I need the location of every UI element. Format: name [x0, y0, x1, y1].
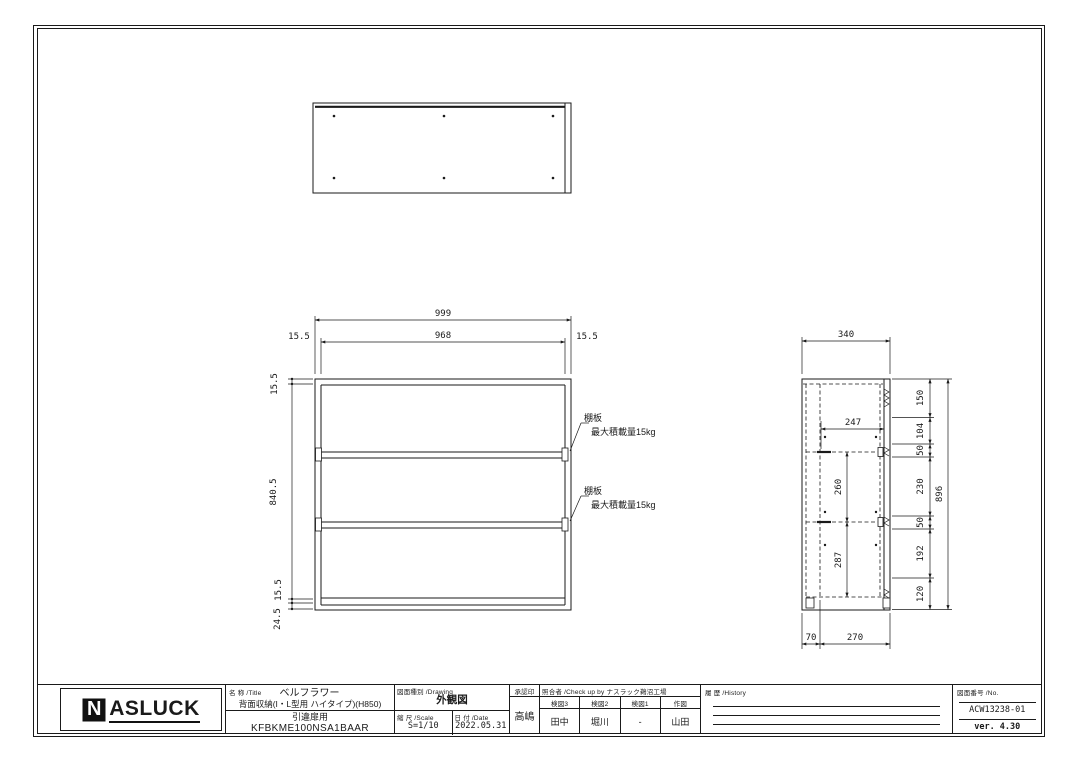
history-label: 履 歴 /History — [705, 687, 746, 697]
check-cell: 照合者 /Check up by ナスラック鵜沼工場 検図3 田中 検図2 堀川… — [539, 685, 700, 734]
chain-dim-50b: 50 — [916, 517, 926, 528]
history-line — [713, 724, 940, 725]
check-col-name: 山田 — [661, 709, 700, 734]
approval-label: 承認印 — [510, 685, 539, 697]
scale-label: 縮 尺 /Scale — [397, 712, 434, 722]
dim-left-margin: 15.5 — [288, 332, 310, 342]
drawing-type-cell: 図面種別 /Drawing 外観図 縮 尺 /Scale S=1/10 日 付 … — [394, 685, 509, 734]
chain-dim-104: 104 — [916, 423, 926, 439]
dim-back-gap: 70 — [806, 633, 817, 643]
side-view: 340 247 260 287 — [802, 330, 952, 649]
side-overall-height-dimension: 896 — [935, 379, 948, 610]
side-shelf-depth-dimension: 247 — [821, 418, 884, 449]
model-number: KFBKME100NSA1BAAR — [226, 722, 394, 734]
approval-cell: 承認印 高嶋 — [509, 685, 539, 734]
version: ver. 4.30 — [953, 722, 1042, 732]
check-col-name: 堀川 — [580, 709, 619, 734]
drawing-number: ACW13238-01 — [953, 705, 1042, 715]
nasluck-logo: N ASLUCK — [60, 688, 222, 731]
title-block: N ASLUCK 名 称 /Title ベルフラワー 背面収納(I・L型用 ハイ… — [37, 684, 1042, 734]
chain-dim-192: 192 — [916, 545, 926, 561]
chain-dim-150: 150 — [916, 390, 926, 406]
side-depth-dimension: 340 — [802, 330, 890, 374]
dim-shelf-depth: 247 — [845, 418, 861, 428]
check-col-label: 検図2 — [580, 697, 619, 709]
drawing-sheet: 999 968 15.5 15.5 15.5 840.5 — [0, 0, 1080, 764]
drawing-type-label: 図面種別 /Drawing — [397, 686, 453, 696]
dim-body-depth: 270 — [847, 633, 863, 643]
check-label: 照合者 /Check up by ナスラック鵜沼工場 — [540, 685, 700, 697]
divider — [959, 719, 1036, 720]
shelf-note-title: 棚板 — [584, 485, 602, 496]
scale-value: S=1/10 — [408, 721, 439, 735]
date-label: 日 付 /Date — [455, 712, 489, 722]
chain-dim-50a: 50 — [916, 445, 926, 456]
check-col-name: - — [621, 709, 660, 734]
check-col-label: 作図 — [661, 697, 700, 709]
dim-right-margin: 15.5 — [576, 332, 598, 342]
logo-wordmark: ASLUCK — [109, 697, 200, 723]
dim-shelf-span-upper: 260 — [834, 479, 844, 495]
shelf-note-load: 最大積載量15kg — [591, 426, 656, 437]
name-cell: 名 称 /Title ベルフラワー 背面収納(I・L型用 ハイタイプ)(H850… — [225, 685, 394, 734]
dim-inner-width: 968 — [435, 331, 451, 341]
drawing-number-cell: 図面番号 /No. ACW13238-01 ver. 4.30 — [952, 685, 1042, 734]
cad-drawing: 999 968 15.5 15.5 15.5 840.5 — [0, 0, 1080, 764]
dim-base: 24.5 — [273, 608, 283, 630]
logo-n-icon: N — [81, 697, 107, 723]
chain-dim-120: 120 — [916, 586, 926, 602]
shelf-note-title: 棚板 — [584, 412, 602, 423]
approval-name: 高嶋 — [510, 697, 539, 734]
dim-overall-depth: 340 — [838, 330, 854, 340]
chain-dim-230: 230 — [916, 478, 926, 494]
dim-overall-height: 896 — [935, 486, 945, 502]
shelf-note-load: 最大積載量15kg — [591, 499, 656, 510]
history-cell: 履 歴 /History — [700, 685, 952, 734]
divider — [959, 702, 1036, 703]
check-col-3: 検図3 田中 — [540, 697, 579, 734]
drawing-number-label: 図面番号 /No. — [957, 687, 999, 697]
side-bottom-chain: 70 270 — [802, 600, 890, 649]
dim-top-panel: 15.5 — [270, 373, 280, 395]
logo-cell: N ASLUCK — [37, 685, 226, 734]
front-height-dimensions: 15.5 840.5 15.5 24.5 — [269, 373, 313, 630]
product-name: ベルフラワー — [279, 684, 339, 699]
check-col-name: 田中 — [540, 709, 579, 734]
dim-bottom-panel: 15.5 — [274, 579, 284, 601]
shelf-note-2: 棚板 最大積載量15kg — [570, 485, 656, 521]
check-col-draft: 作図 山田 — [660, 697, 700, 734]
check-col-1: 検図1 - — [620, 697, 660, 734]
dim-body-height: 840.5 — [269, 478, 279, 505]
shelf-note-1: 棚板 最大積載量15kg — [570, 412, 656, 451]
side-shelf-span-dimensions: 260 287 — [834, 452, 847, 597]
history-line — [713, 733, 940, 734]
front-view: 999 968 15.5 15.5 15.5 840.5 — [269, 309, 656, 630]
name-label: 名 称 /Title — [229, 687, 261, 697]
front-width-dimensions: 999 968 15.5 15.5 — [288, 309, 598, 374]
dim-shelf-span-lower: 287 — [834, 552, 844, 568]
history-line — [713, 706, 940, 707]
dim-overall-width: 999 — [435, 309, 451, 319]
top-view — [313, 103, 571, 193]
history-line — [713, 715, 940, 716]
check-col-2: 検図2 堀川 — [579, 697, 619, 734]
check-col-label: 検図1 — [621, 697, 660, 709]
product-use: 引違扉用 — [226, 711, 394, 722]
check-col-label: 検図3 — [540, 697, 579, 709]
date-value: 2022.05.31 — [455, 721, 506, 735]
